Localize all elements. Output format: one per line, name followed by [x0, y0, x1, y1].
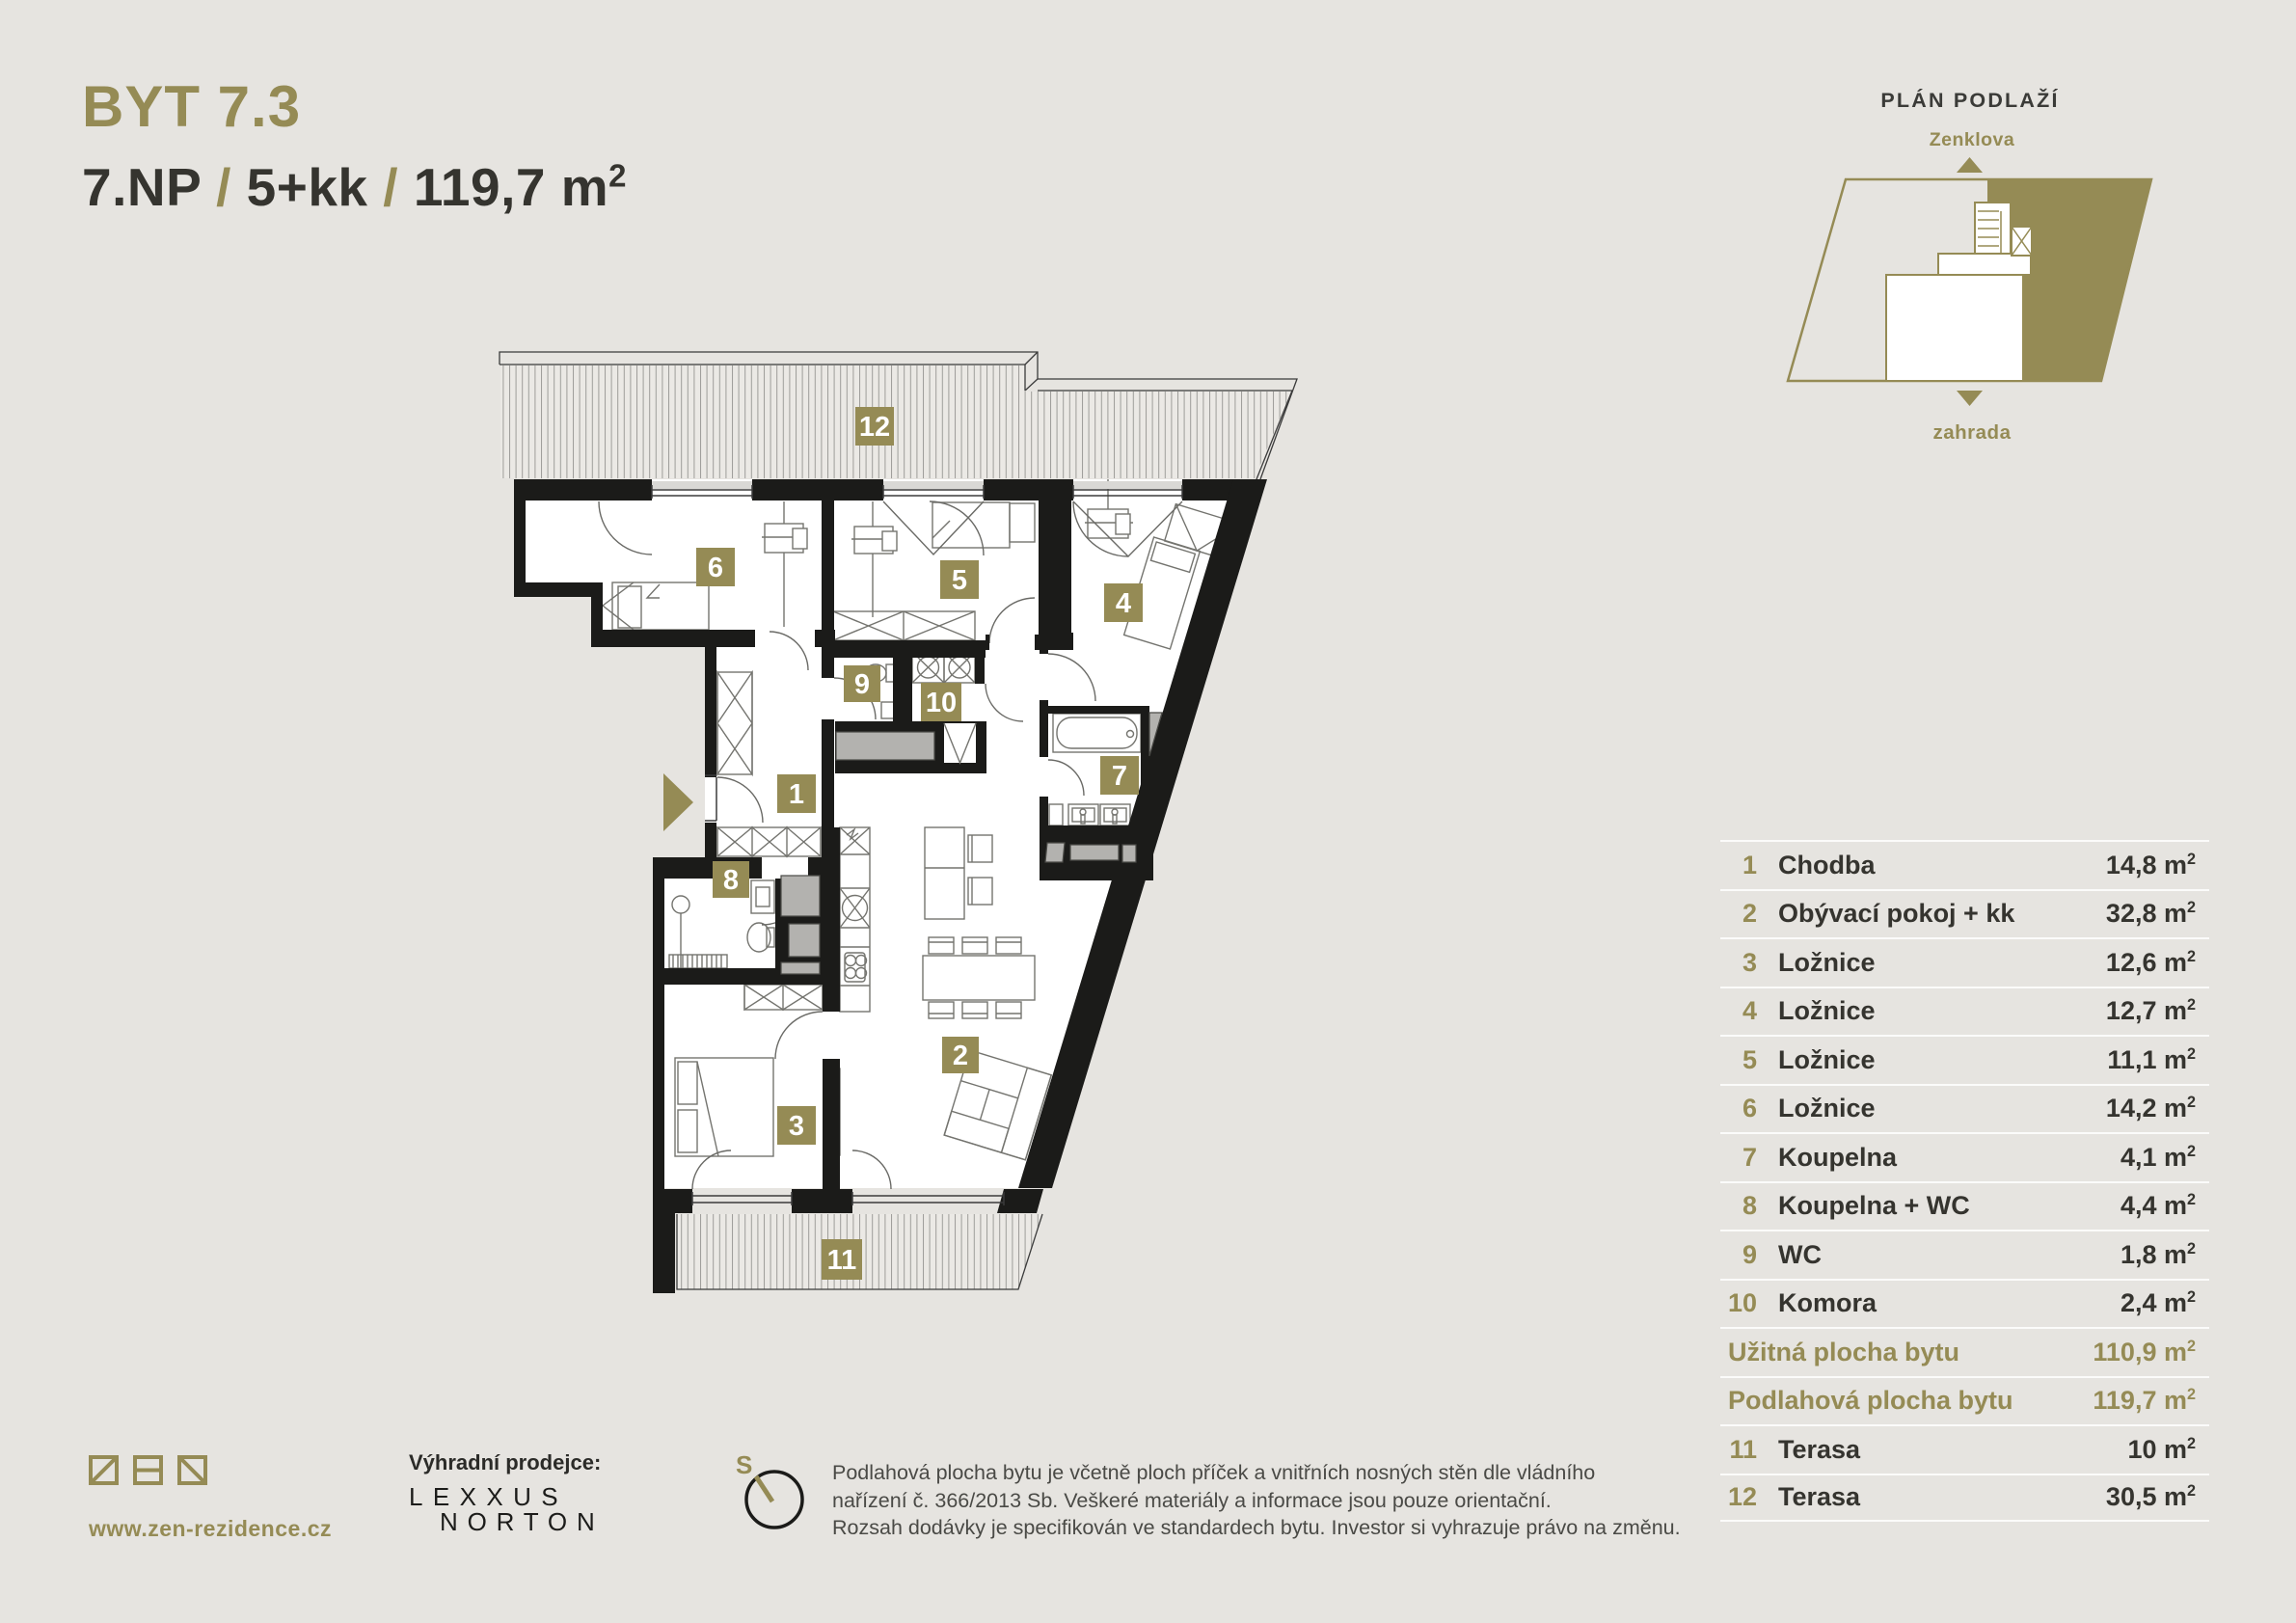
svg-text:1: 1 — [789, 779, 804, 810]
svg-text:4: 4 — [1116, 588, 1131, 619]
svg-text:5: 5 — [952, 565, 967, 596]
svg-text:8: 8 — [723, 865, 739, 896]
svg-text:S: S — [736, 1450, 752, 1479]
svg-text:10: 10 — [926, 688, 957, 718]
svg-text:7: 7 — [1112, 761, 1127, 792]
svg-text:6: 6 — [708, 553, 723, 583]
svg-text:11: 11 — [827, 1245, 857, 1276]
svg-text:2: 2 — [953, 1041, 968, 1071]
svg-text:12: 12 — [859, 412, 890, 443]
svg-text:9: 9 — [854, 669, 870, 700]
svg-text:3: 3 — [789, 1111, 804, 1142]
